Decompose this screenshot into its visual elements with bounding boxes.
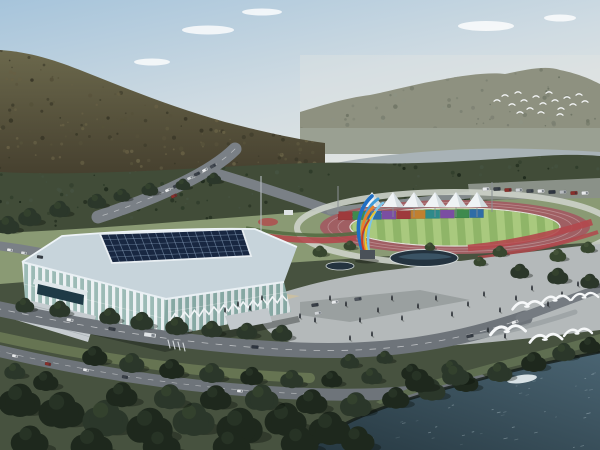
small-pool <box>326 262 354 270</box>
architectural-rendering <box>0 0 600 450</box>
scene-svg <box>0 0 600 450</box>
small-building <box>284 210 293 215</box>
